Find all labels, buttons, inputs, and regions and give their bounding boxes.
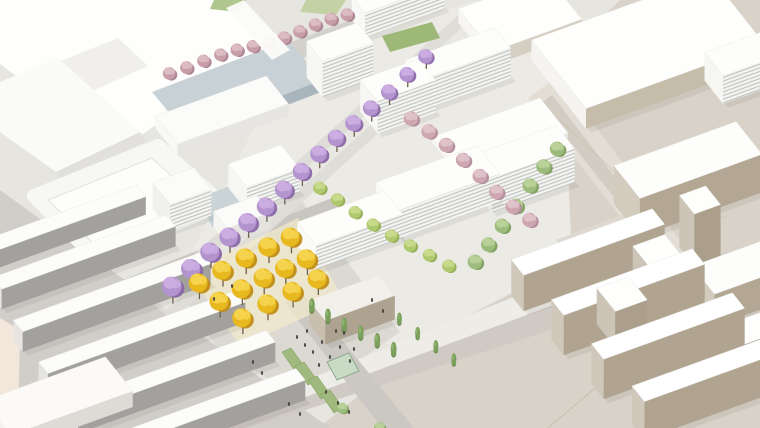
person-figure	[325, 390, 327, 394]
person-figure	[353, 347, 355, 351]
person-figure	[348, 410, 350, 414]
person-figure	[213, 297, 215, 301]
person-figure	[306, 329, 308, 333]
tree-conifer-row-east	[451, 353, 456, 367]
person-figure	[321, 340, 323, 344]
scene-svg	[0, 0, 760, 428]
person-figure	[299, 412, 301, 416]
person-figure	[288, 402, 290, 406]
person-figure	[335, 329, 337, 333]
tree-conifer-row-east	[415, 327, 420, 341]
person-figure	[337, 401, 339, 405]
tree-conifer-row-plaza	[374, 333, 380, 349]
tree-conifer-row-east	[397, 313, 402, 327]
person-figure	[343, 331, 345, 335]
person-figure	[296, 335, 298, 339]
person-figure	[231, 284, 233, 288]
tree-conifer-row-plaza	[341, 317, 347, 333]
tree-conifer-row-plaza	[325, 309, 331, 325]
tree-conifer-row-plaza	[358, 325, 364, 341]
person-figure	[318, 363, 320, 367]
tree-conifer-row-plaza	[391, 342, 397, 358]
tree-conifer-row-plaza	[309, 298, 315, 314]
person-figure	[312, 350, 314, 354]
person-figure	[261, 371, 263, 375]
person-figure	[329, 355, 331, 359]
person-figure	[339, 345, 341, 349]
person-figure	[382, 309, 384, 313]
person-figure	[304, 343, 306, 347]
person-figure	[349, 359, 351, 363]
person-figure	[371, 298, 373, 302]
masterplan-rendering	[0, 0, 760, 428]
tree-conifer-row-east	[433, 340, 438, 354]
person-figure	[252, 360, 254, 364]
